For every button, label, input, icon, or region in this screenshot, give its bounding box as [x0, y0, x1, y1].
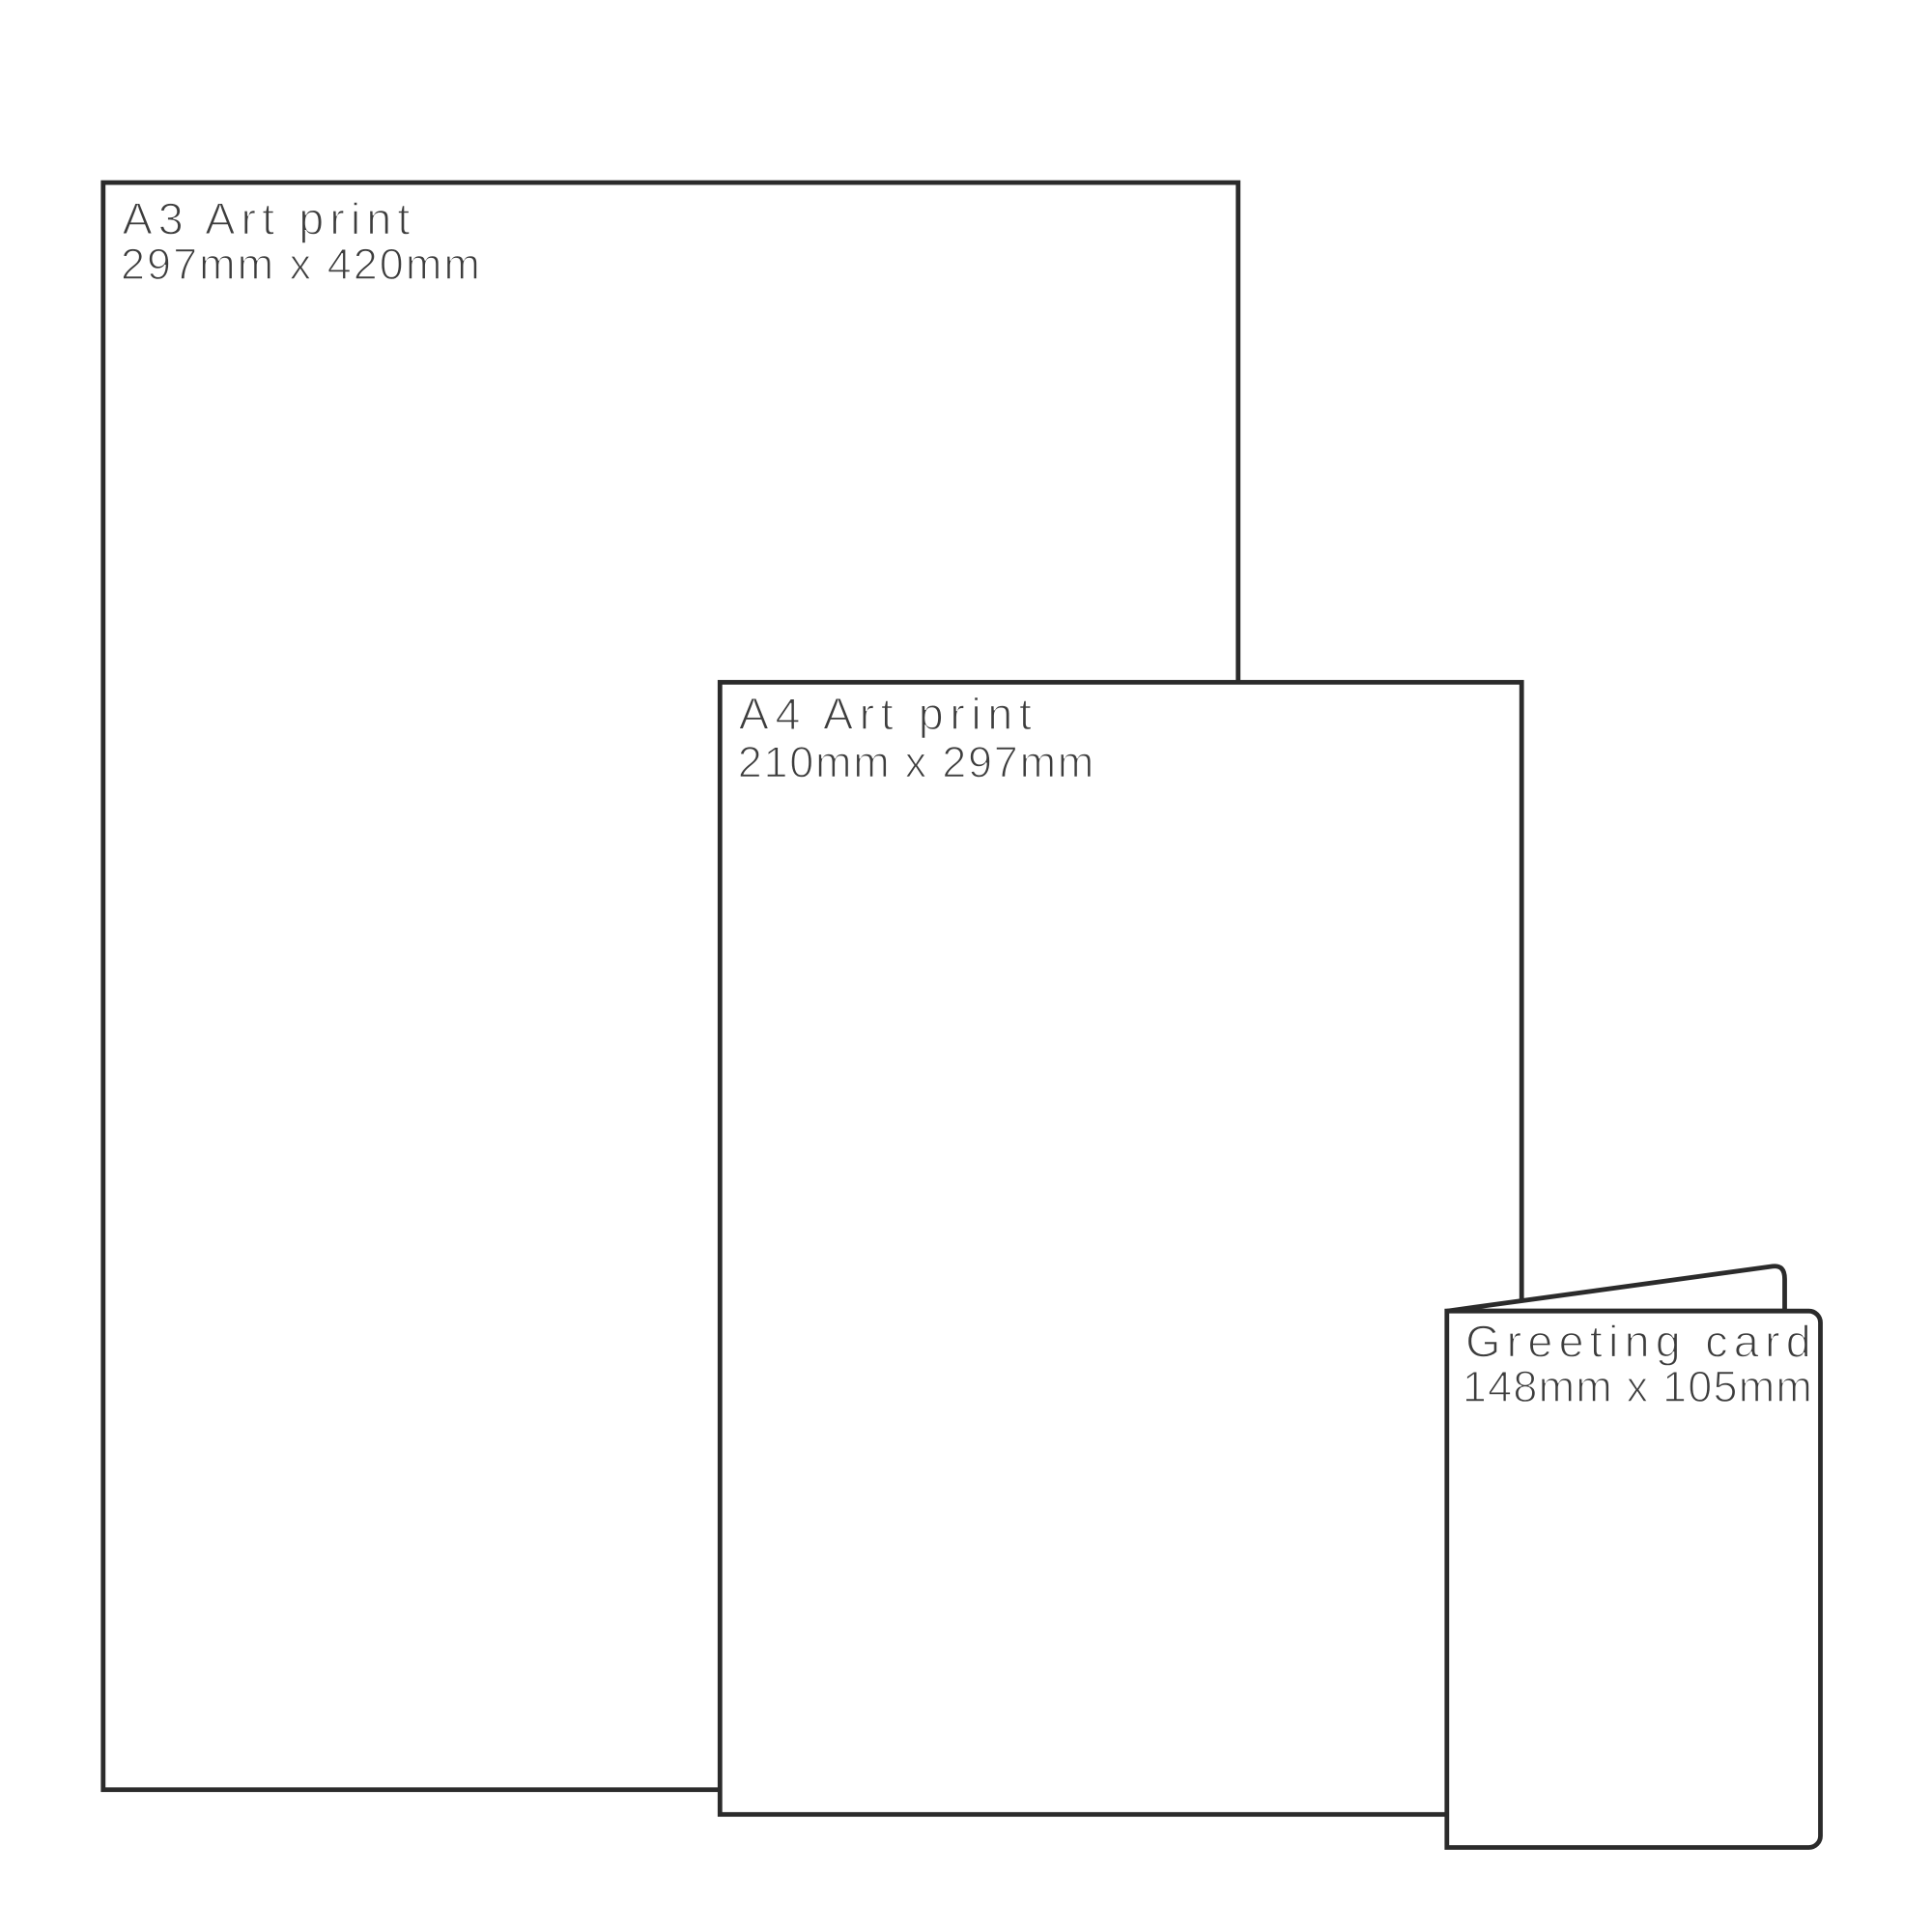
svg-text:297mm x 420mm: 297mm x 420mm: [121, 240, 482, 289]
svg-text:148mm x 105mm: 148mm x 105mm: [1463, 1362, 1813, 1411]
svg-text:A3 Art print: A3 Art print: [123, 194, 416, 244]
svg-text:A4 Art print: A4 Art print: [739, 689, 1038, 739]
svg-text:210mm x 297mm: 210mm x 297mm: [738, 738, 1095, 787]
svg-text:Greeting card: Greeting card: [1465, 1317, 1817, 1367]
